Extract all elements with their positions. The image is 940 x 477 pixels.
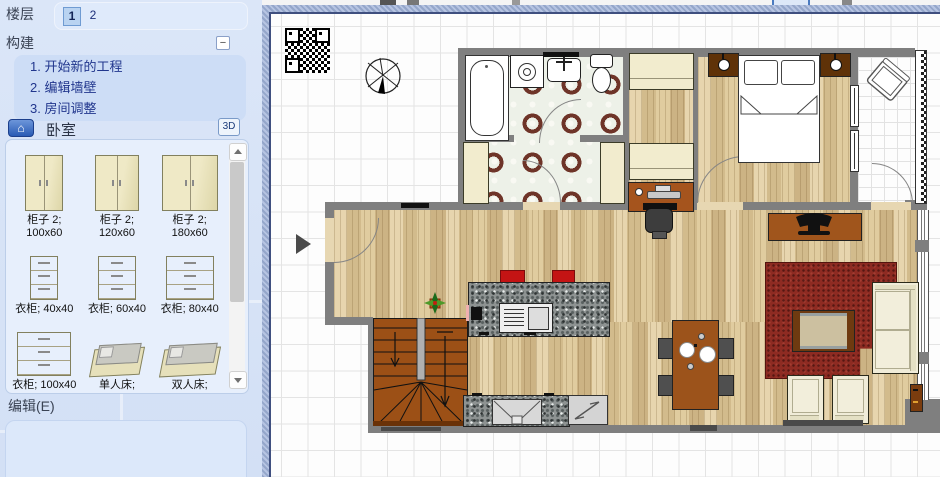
catalog-item-dresser-100x40[interactable]: 衣柜; 100x40 xyxy=(8,316,81,392)
wall[interactable] xyxy=(850,48,858,208)
wardrobe-icon xyxy=(25,155,63,211)
double-bed-icon xyxy=(159,347,221,378)
catalog-item-dresser-80x40[interactable]: 衣柜; 80x40 xyxy=(153,240,226,316)
wall[interactable] xyxy=(325,317,373,325)
staircase[interactable] xyxy=(373,318,468,427)
door-opening xyxy=(325,218,334,262)
build-header: 构建 xyxy=(6,35,34,51)
window[interactable] xyxy=(850,130,859,172)
floor-tab-2[interactable]: 2 xyxy=(85,7,101,24)
bathroom-cabinet[interactable] xyxy=(463,142,489,204)
door-opening xyxy=(523,202,560,210)
door-opening xyxy=(697,202,743,210)
edit-panel xyxy=(5,420,247,477)
cooktop-unit xyxy=(499,303,553,333)
threshold-strip xyxy=(690,425,717,431)
scroll-down-button[interactable] xyxy=(229,371,247,389)
step-new-project[interactable]: 1. 开始新的工程 xyxy=(14,55,246,76)
pointer-marker-icon xyxy=(296,234,311,254)
dresser-icon xyxy=(98,256,136,300)
threshold-strip xyxy=(381,427,441,431)
catalog-item-single-bed[interactable]: 单人床; xyxy=(81,316,154,392)
dining-chair[interactable] xyxy=(717,375,734,396)
catalog-item-cabinet-120x60[interactable]: 柜子 2;120x60 xyxy=(81,144,154,240)
kitchen-island[interactable] xyxy=(468,282,610,337)
threshold-strip xyxy=(783,420,863,426)
plate xyxy=(699,346,716,363)
dining-chair[interactable] xyxy=(717,338,734,359)
floor-planner-app: 楼层 1 2 构建 − 1. 开始新的工程 2. 编辑墙壁 3. 房间调整 ⌂ … xyxy=(0,0,940,477)
compass[interactable] xyxy=(360,53,406,99)
floor-header: 楼层 xyxy=(6,6,34,22)
qr-code[interactable] xyxy=(285,28,330,73)
potted-plant[interactable] xyxy=(424,292,446,314)
bathroom-cabinet[interactable] xyxy=(600,142,625,204)
plate xyxy=(679,342,695,358)
single-bed-icon xyxy=(89,347,145,378)
washbasin[interactable] xyxy=(510,55,544,88)
dresser-icon xyxy=(17,332,71,376)
step-adjust-rooms[interactable]: 3. 房间调整 xyxy=(14,97,246,118)
armchair[interactable] xyxy=(832,375,869,424)
window-wall[interactable] xyxy=(915,50,927,204)
nightstand[interactable] xyxy=(708,53,739,77)
office-chair[interactable] xyxy=(645,208,673,233)
nightstand[interactable] xyxy=(820,53,851,77)
armchair[interactable] xyxy=(787,375,824,424)
window-mullion xyxy=(915,240,929,252)
floor-tab-1[interactable]: 1 xyxy=(63,7,81,26)
plan-canvas-frame xyxy=(262,5,940,477)
edit-menu-header[interactable]: 编辑(E) xyxy=(8,396,55,416)
closet-cabinet[interactable] xyxy=(629,53,694,90)
dresser-icon xyxy=(166,256,214,300)
dishwasher[interactable] xyxy=(568,395,608,425)
wall[interactable] xyxy=(580,135,626,142)
kitchen-sink[interactable] xyxy=(492,399,542,425)
wardrobe-icon xyxy=(162,155,218,211)
catalog-item-dresser-40x40[interactable]: 衣柜; 40x40 xyxy=(8,240,81,316)
catalog-item-double-bed[interactable]: 双人床; xyxy=(153,316,226,392)
home-icon[interactable]: ⌂ xyxy=(8,119,34,137)
floor-tabs: 1 2 xyxy=(54,2,248,30)
coffee-table[interactable] xyxy=(792,310,855,352)
toilet[interactable] xyxy=(589,53,615,95)
bathtub[interactable] xyxy=(465,55,509,141)
category-title: 卧室 xyxy=(46,119,76,140)
island-faucet xyxy=(471,307,482,320)
scrollbar-thumb[interactable] xyxy=(230,162,244,302)
side-door[interactable] xyxy=(910,384,923,412)
wall-marker xyxy=(401,203,429,208)
balcony-chair[interactable] xyxy=(864,58,910,104)
build-steps: 1. 开始新的工程 2. 编辑墙壁 3. 房间调整 xyxy=(14,55,246,121)
sidebar: 楼层 1 2 构建 − 1. 开始新的工程 2. 编辑墙壁 3. 房间调整 ⌂ … xyxy=(0,0,262,477)
furniture-catalog: 柜子 2;100x60 柜子 2;120x60 柜子 2;180x60 衣柜; … xyxy=(5,139,249,394)
catalog-item-cabinet-100x60[interactable]: 柜子 2;100x60 xyxy=(8,144,81,240)
dresser-icon xyxy=(30,256,58,300)
double-bed[interactable] xyxy=(738,55,820,163)
collapse-button[interactable]: − xyxy=(216,36,230,50)
step-edit-walls[interactable]: 2. 编辑墙壁 xyxy=(14,76,246,97)
view-3d-button[interactable]: 3D xyxy=(218,118,240,136)
wardrobe-icon xyxy=(95,155,139,211)
wall-sink[interactable] xyxy=(547,58,581,82)
window[interactable] xyxy=(850,85,859,127)
catalog-scrollbar[interactable] xyxy=(229,143,245,389)
plan-canvas[interactable] xyxy=(269,12,940,477)
catalog-item-dresser-60x40[interactable]: 衣柜; 60x40 xyxy=(81,240,154,316)
scroll-up-button[interactable] xyxy=(229,143,247,161)
closet-cabinet[interactable] xyxy=(629,143,694,180)
television[interactable] xyxy=(784,213,844,239)
sofa[interactable] xyxy=(872,282,919,374)
catalog-item-cabinet-180x60[interactable]: 柜子 2;180x60 xyxy=(153,144,226,240)
dining-table[interactable] xyxy=(672,320,719,410)
mirror xyxy=(543,52,579,57)
